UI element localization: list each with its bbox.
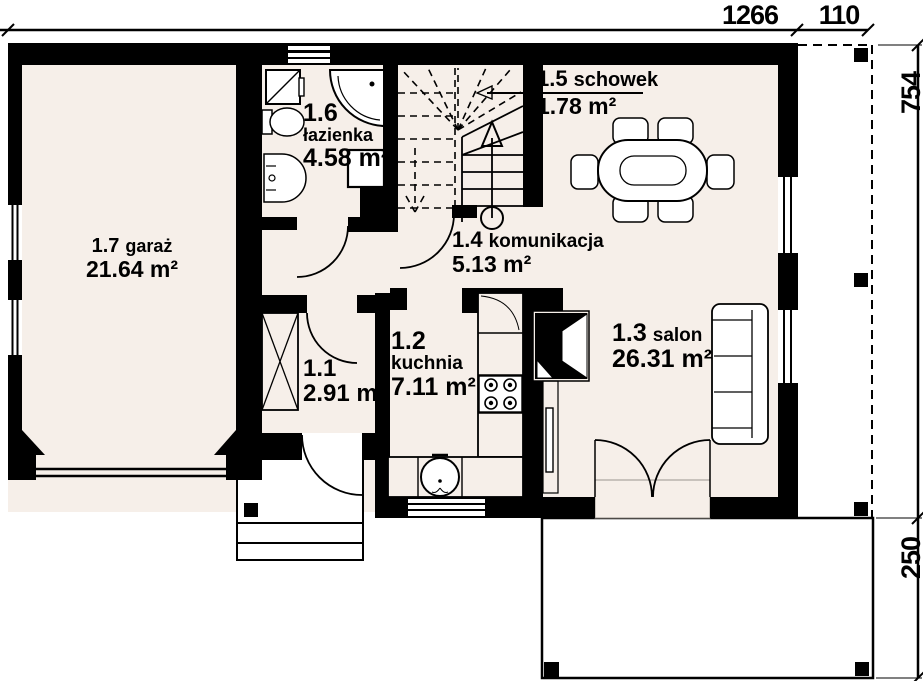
dimension-height-main: 754 [897, 48, 923, 138]
garage-window-lower [8, 300, 22, 355]
room-area: 2.91 m² [303, 381, 386, 406]
room-name: komunikacja [489, 231, 604, 252]
room-label-garaz: 1.7garaż 21.64 m² [57, 236, 207, 281]
room-name: schowek [574, 69, 658, 91]
room-name: salon [653, 325, 703, 346]
room-number: 1.5 [537, 66, 568, 91]
room-number: 1.1 [303, 356, 386, 381]
room-label-1-1: 1.1 2.91 m² [303, 356, 386, 406]
room-number: 1.2 [391, 328, 476, 354]
dining-table [598, 140, 707, 201]
room-name: łazienka [303, 126, 389, 145]
fireplace [533, 311, 589, 381]
kitchen-window [408, 499, 485, 516]
room-number: 1.4 [452, 227, 483, 252]
washing-machine [266, 70, 304, 104]
chair [571, 155, 598, 189]
kitchen-counter-bottom [388, 455, 523, 497]
room-label-komunikacja: 1.4komunikacja 5.13 m² [452, 228, 604, 276]
room-area: 26.31 m² [612, 346, 712, 372]
kitchen-sink [421, 458, 459, 496]
room-number: 1.7 [92, 235, 120, 257]
room-label-salon: 1.3salon 26.31 m² [612, 320, 712, 373]
room-label-lazienka: 1.6 łazienka 4.58 m² [303, 100, 389, 171]
room-name: garaż [125, 236, 172, 256]
room-label-schowek: 1.5schowek 1.78 m² [537, 67, 658, 118]
dimension-terrace-depth: 250 [897, 514, 923, 602]
stove [479, 376, 522, 412]
terrace-door-threshold [595, 480, 710, 518]
floor-plan-page: 1.7garaż 21.64 m² 1.6 łazienka 4.58 m² 1… [0, 0, 923, 681]
chair [707, 155, 734, 189]
room-area: 21.64 m² [57, 257, 207, 281]
kitchen-counter-column [478, 293, 523, 457]
room-label-kuchnia: 1.2 kuchnia 7.11 m² [391, 328, 476, 400]
toilet [262, 108, 304, 136]
wardrobe [262, 313, 298, 410]
salon-window-lower [778, 310, 798, 383]
dimension-width-main: 1266 [700, 1, 800, 29]
room-name: kuchnia [391, 354, 476, 374]
chimney-vent [288, 46, 330, 63]
terrace [542, 518, 873, 678]
room-area: 7.11 m² [391, 374, 476, 400]
dimension-width-overhang: 110 [806, 1, 872, 29]
room-area: 5.13 m² [452, 252, 604, 276]
room-number: 1.3 [612, 319, 647, 347]
tv [546, 408, 553, 472]
room-area: 4.58 m² [303, 145, 389, 171]
garage-window-upper [8, 205, 22, 260]
bathroom-sink [264, 154, 306, 202]
room-area: 1.78 m² [537, 94, 658, 118]
salon-window-upper [778, 177, 798, 253]
room-number: 1.6 [303, 100, 389, 126]
sofa [712, 304, 768, 444]
